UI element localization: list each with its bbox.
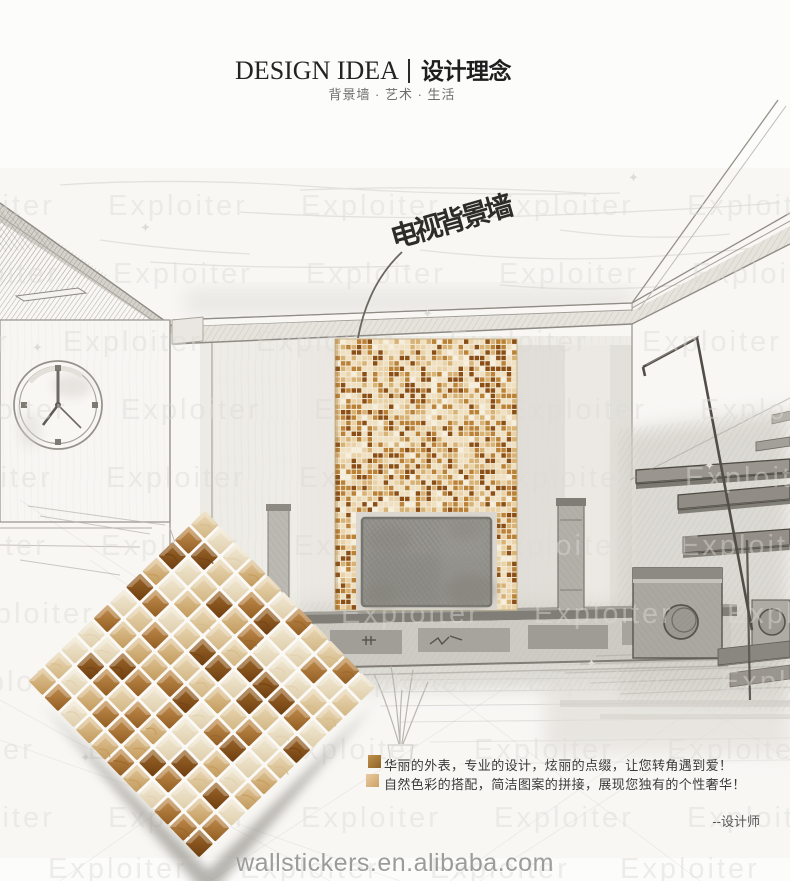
svg-text:Exploiter: Exploiter <box>642 326 782 358</box>
svg-text:Exploiter: Exploiter <box>494 190 634 222</box>
svg-text:Exploiter: Exploiter <box>113 258 253 290</box>
svg-text:Exploiter: Exploiter <box>106 462 246 494</box>
svg-text:Exploiter: Exploiter <box>0 530 48 562</box>
svg-text:Exploiter: Exploiter <box>108 190 248 222</box>
svg-text:✦: ✦ <box>704 458 715 473</box>
svg-text:Exploiter: Exploiter <box>727 598 790 630</box>
svg-text:Exploiter: Exploiter <box>0 326 10 358</box>
svg-text:Exploiter: Exploiter <box>720 666 790 698</box>
svg-text:Exploiter: Exploiter <box>0 190 55 222</box>
svg-text:Exploiter: Exploiter <box>0 462 53 494</box>
svg-text:✦: ✦ <box>586 656 597 671</box>
svg-text:Exploiter: Exploiter <box>499 258 639 290</box>
svg-text:Exploiter: Exploiter <box>534 598 674 630</box>
svg-text:✦: ✦ <box>628 170 639 185</box>
svg-text:Exploiter: Exploiter <box>0 394 68 426</box>
svg-text:Exploiter: Exploiter <box>700 394 790 426</box>
svg-text:Exploiter: Exploiter <box>692 258 790 290</box>
svg-text:Exploiter: Exploiter <box>63 326 203 358</box>
svg-text:✦: ✦ <box>140 220 151 235</box>
svg-text:Exploiter: Exploiter <box>507 394 647 426</box>
svg-text:✦: ✦ <box>422 306 433 321</box>
svg-text:Exploiter: Exploiter <box>0 258 60 290</box>
svg-text:Exploiter: Exploiter <box>680 530 790 562</box>
svg-text:Exploiter: Exploiter <box>527 666 667 698</box>
svg-text:Exploiter: Exploiter <box>494 802 634 834</box>
svg-text:✦: ✦ <box>32 340 43 355</box>
svg-text:Exploiter: Exploiter <box>301 802 441 834</box>
svg-text:Exploiter: Exploiter <box>121 394 261 426</box>
svg-text:Exploiter: Exploiter <box>0 598 95 630</box>
svg-text:Exploiter: Exploiter <box>0 734 35 766</box>
svg-text:Exploiter: Exploiter <box>687 190 790 222</box>
svg-text:Exploiter: Exploiter <box>685 462 790 494</box>
svg-text:Exploiter: Exploiter <box>0 802 55 834</box>
